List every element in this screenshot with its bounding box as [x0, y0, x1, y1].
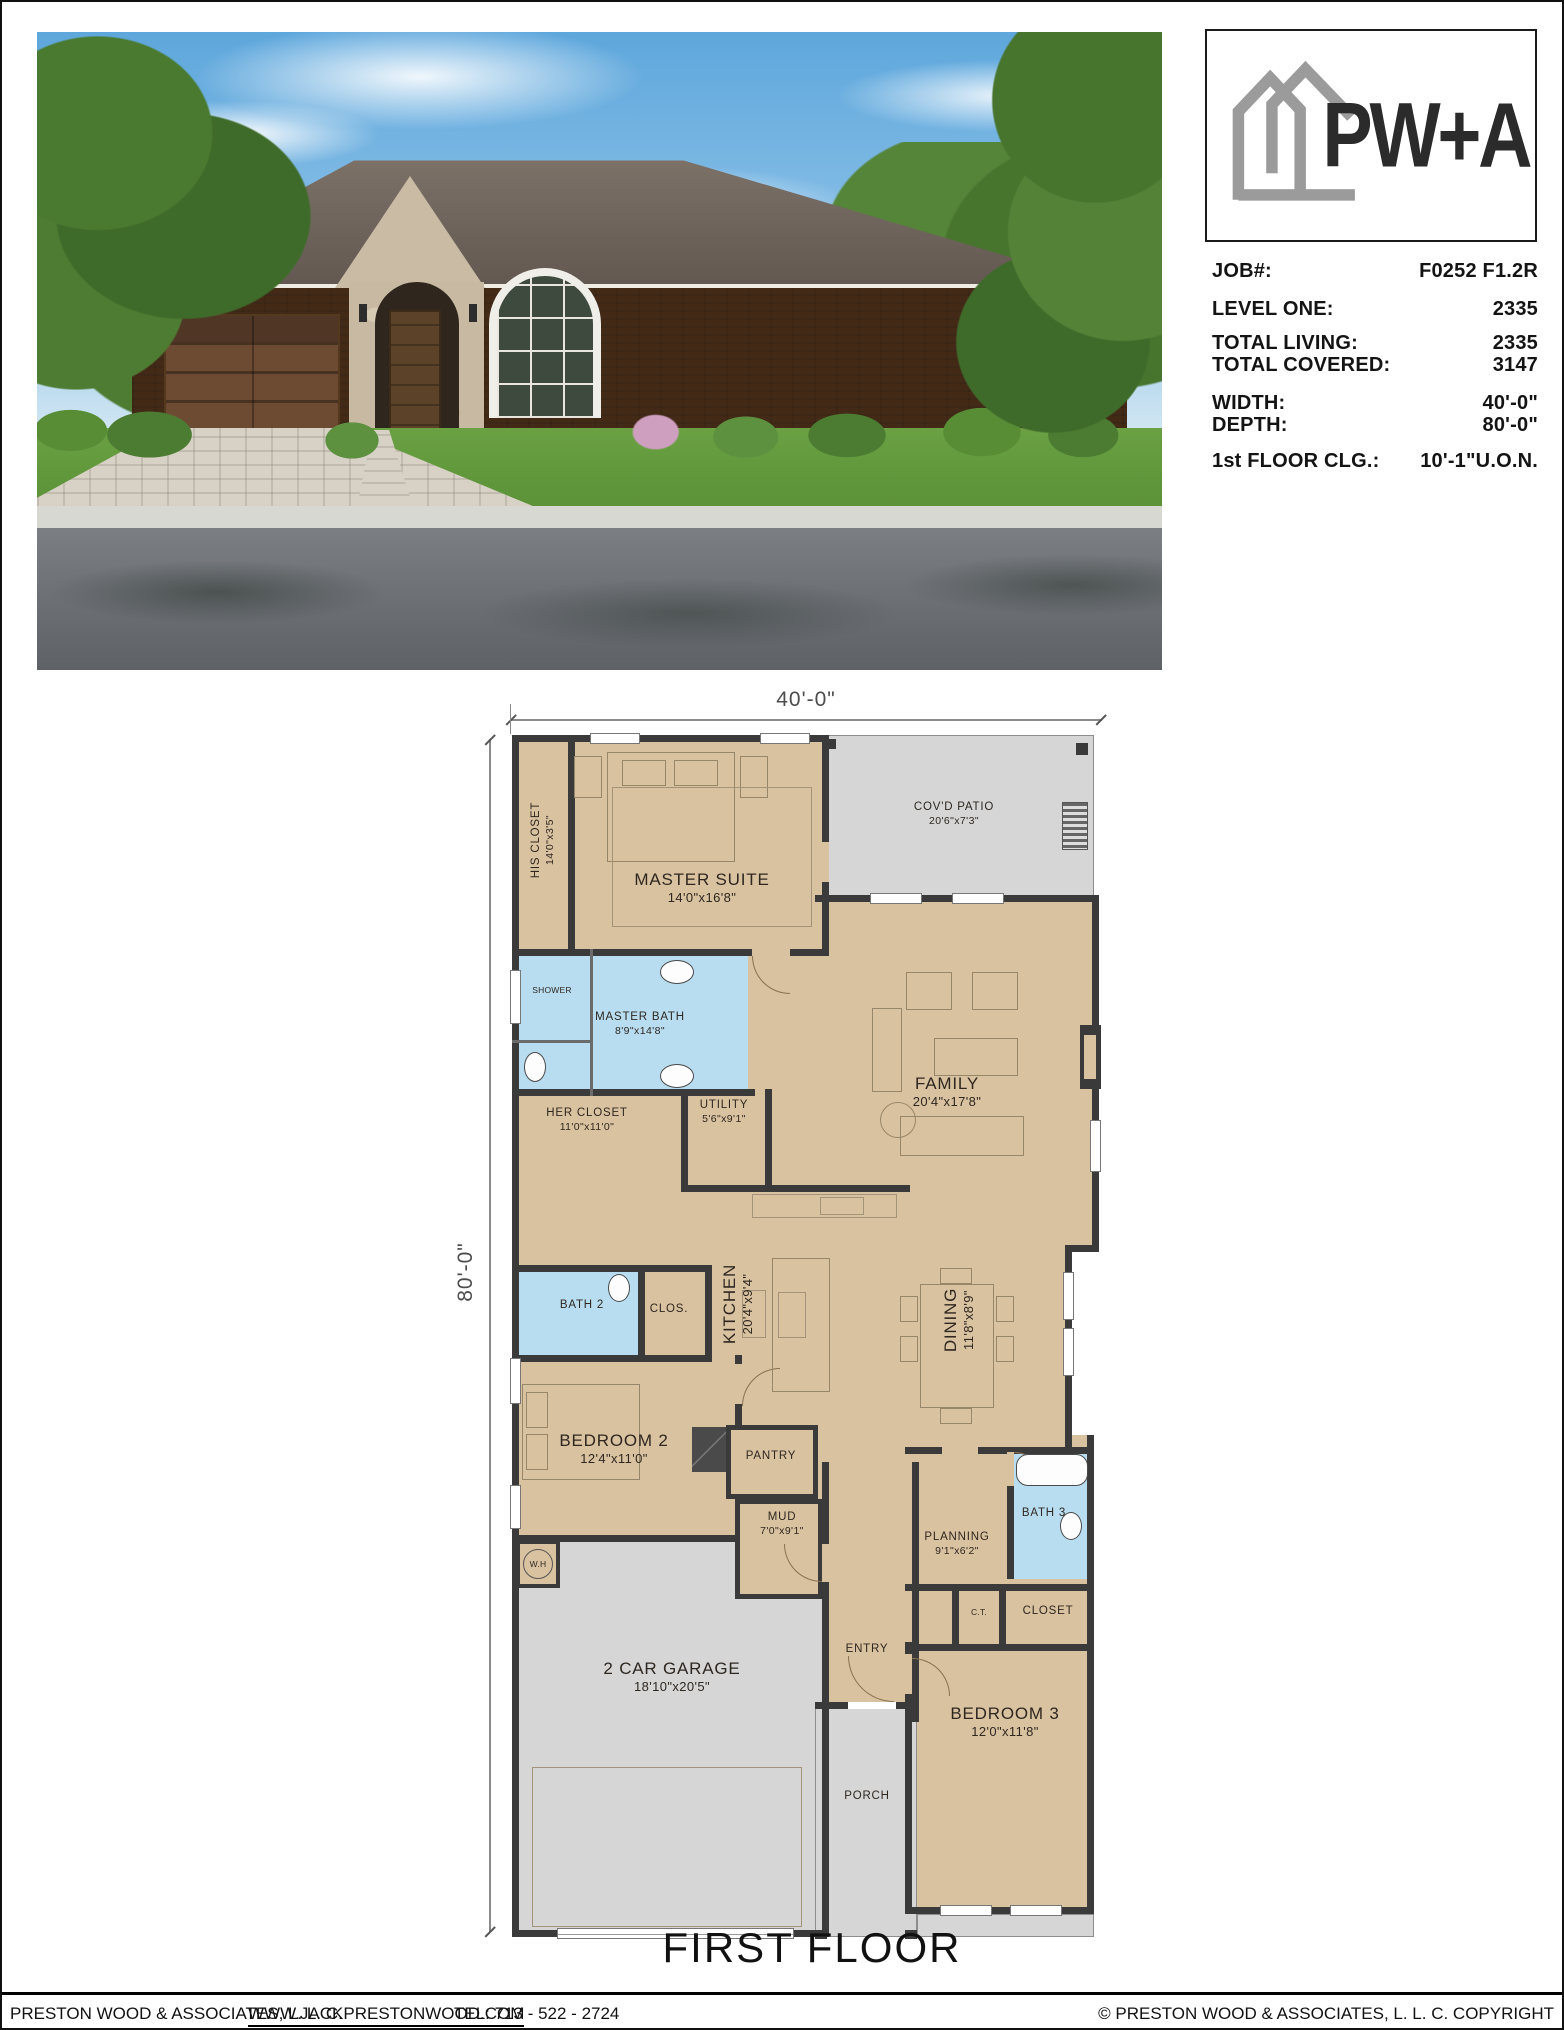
total-covered-value: 3147 [1493, 354, 1538, 377]
wc-partition [512, 1040, 592, 1043]
room-label-kitchen: KITCHEN20'4"x9'4" [720, 1264, 756, 1344]
patio-door [870, 893, 922, 904]
width-label: WIDTH: [1212, 392, 1285, 415]
garage-slab-line [532, 1767, 802, 1927]
street [37, 528, 1162, 670]
job-label: JOB#: [1212, 260, 1272, 283]
clg-label: 1st FLOOR CLG.: [1212, 450, 1379, 473]
wall [905, 1447, 1094, 1454]
sidewalk-curb [37, 506, 1162, 530]
nightstand [574, 756, 602, 798]
window [760, 733, 810, 744]
room-label-ct: C.T. [971, 1607, 987, 1617]
room-label-closet: CLOSET [1023, 1605, 1074, 1619]
room-label-bedroom-3: BEDROOM 312'0"x11'8" [950, 1704, 1059, 1740]
wall [705, 1265, 712, 1362]
room-label-entry: ENTRY [846, 1643, 889, 1657]
dining-chair [900, 1296, 918, 1322]
room-label-dining: DINING11'8"x8'9" [941, 1288, 977, 1352]
clg-value: 10'-1"U.O.N. [1420, 450, 1538, 473]
door-gap [822, 842, 829, 882]
rug [612, 787, 812, 927]
pwa-logo-text: PW+A [1322, 83, 1529, 188]
plan-sheet: PW+A JOB#: F0252 F1.2R LEVEL ONE: 2335 T… [0, 0, 1564, 2030]
wall [999, 1584, 1006, 1651]
room-label-covd-patio: COV'D PATIO20'6"x7'3" [914, 801, 994, 827]
total-living-label: TOTAL LIVING: [1212, 332, 1358, 355]
sofa [900, 1116, 1024, 1156]
total-covered-label: TOTAL COVERED: [1212, 354, 1390, 377]
wall [512, 1355, 712, 1362]
width-dimension-text: 40'-0" [776, 688, 836, 712]
depth-label: DEPTH: [1212, 414, 1288, 437]
room-label-bath-2: BATH 2 [560, 1299, 604, 1313]
shower-partition [590, 949, 593, 1096]
width-row: WIDTH: 40'-0" [1212, 392, 1542, 416]
wall [1065, 1245, 1099, 1252]
total-living-row: TOTAL LIVING: 2335 [1212, 332, 1542, 356]
kitchen-sink [820, 1197, 864, 1215]
room-label-bath-3: BATH 3 [1022, 1507, 1066, 1521]
door-gap [905, 1654, 912, 1694]
patio-louver [1062, 802, 1088, 850]
width-dimension-line [510, 719, 1102, 721]
wall [638, 1265, 645, 1362]
dining-chair [940, 1408, 972, 1424]
chase [692, 1427, 726, 1472]
window [510, 1358, 521, 1404]
level-one-row: LEVEL ONE: 2335 [1212, 298, 1542, 322]
wall [681, 1185, 772, 1192]
door-gap [752, 949, 790, 956]
depth-row: DEPTH: 80'-0" [1212, 414, 1542, 438]
door-gap [942, 1447, 978, 1454]
wall [512, 735, 519, 1937]
pillow [526, 1434, 548, 1470]
patio-door [952, 893, 1004, 904]
total-covered-row: TOTAL COVERED: 3147 [1212, 354, 1542, 378]
clg-row: 1st FLOOR CLG.: 10'-1"U.O.N. [1212, 450, 1542, 474]
footer-telephone: TEL: 713 - 522 - 2724 [454, 2004, 619, 2024]
room-label-her-closet: HER CLOSET11'0"x11'0" [546, 1107, 628, 1133]
total-living-value: 2335 [1493, 332, 1538, 355]
window [510, 1485, 521, 1529]
depth-value: 80'-0" [1483, 414, 1538, 437]
coffee-table [934, 1038, 1018, 1076]
wall [952, 1584, 959, 1651]
wall [822, 1462, 829, 1542]
wall [748, 1185, 910, 1192]
toilet [608, 1274, 630, 1302]
dining-chair [996, 1296, 1014, 1322]
room-label-shower: SHOWER [532, 985, 571, 995]
depth-dimension-line [489, 739, 491, 1932]
bath-sink [660, 960, 694, 984]
front-door-opening [848, 1702, 896, 1709]
footer-bar: PRESTON WOOD & ASSOCIATES, L. L. C. WWW.… [2, 1992, 1562, 2030]
room-label-family: FAMILY20'4"x17'8" [913, 1074, 981, 1110]
patio-post [1076, 743, 1088, 755]
wall-lantern [469, 304, 477, 322]
room-label-pantry: PANTRY [746, 1450, 796, 1464]
room-label-bedroom-2: BEDROOM 212'4"x11'0" [559, 1431, 668, 1467]
bookcase [872, 1008, 902, 1092]
pwa-logo-box: PW+A [1205, 29, 1537, 242]
dining-chair [900, 1336, 918, 1362]
window [590, 733, 640, 744]
wall [905, 1907, 1094, 1914]
window [940, 1905, 992, 1916]
room-label-master-bath: MASTER BATH8'9"x14'8" [595, 1011, 685, 1037]
room-label-planning: PLANNING9'1"x6'2" [924, 1531, 989, 1557]
fireplace-inner [1084, 1035, 1096, 1079]
wall [822, 1535, 829, 1937]
room-label-utility: UTILITY5'6"x9'1" [700, 1099, 748, 1125]
dining-chair [996, 1336, 1014, 1362]
wall [1087, 1435, 1094, 1914]
window [1090, 1120, 1101, 1172]
dining-chair [940, 1268, 972, 1284]
pillow [526, 1392, 548, 1428]
island-sink [778, 1292, 806, 1338]
window [510, 970, 521, 1024]
room-label-master-suite: MASTER SUITE14'0"x16'8" [634, 870, 769, 906]
room-label-garage: 2 CAR GARAGE18'10"x20'5" [603, 1659, 740, 1695]
armchair [906, 972, 952, 1010]
door-gap [1007, 1452, 1014, 1486]
job-row: JOB#: F0252 F1.2R [1212, 260, 1542, 284]
toilet [524, 1052, 546, 1082]
side-table [880, 1102, 916, 1138]
window [1063, 1328, 1074, 1376]
left-tree [37, 32, 377, 492]
pillow [674, 760, 718, 786]
bath-sink [660, 1064, 694, 1088]
width-value: 40'-0" [1483, 392, 1538, 415]
pillow [622, 760, 666, 786]
room-porch [815, 1702, 917, 1937]
plan-title: FIRST FLOOR [562, 1924, 1062, 1972]
room-label-clos: CLOS. [650, 1303, 689, 1317]
wall [512, 1089, 755, 1096]
window [1010, 1905, 1062, 1916]
room-label-mud: MUD7'0"x9'1" [760, 1511, 804, 1537]
door-gap [735, 1364, 742, 1404]
floor-plan: 40'-0" 80'-0" [422, 692, 1202, 1962]
house-rendering-photo [37, 32, 1162, 670]
room-label-his-closet: HIS CLOSET14'0"x3'5" [530, 802, 556, 878]
room-label-water-heater: W.H [530, 1559, 547, 1569]
wall [512, 1265, 709, 1272]
level-one-label: LEVEL ONE: [1212, 298, 1334, 321]
wall [681, 1089, 688, 1192]
depth-dimension-text: 80'-0" [454, 1242, 478, 1302]
wall [765, 1089, 772, 1192]
level-one-value: 2335 [1493, 298, 1538, 321]
bathtub [1016, 1454, 1088, 1486]
window [1063, 1272, 1074, 1320]
job-value: F0252 F1.2R [1419, 260, 1538, 283]
footer-copyright: © PRESTON WOOD & ASSOCIATES, L. L. C. CO… [1098, 2004, 1554, 2024]
armchair [972, 972, 1018, 1010]
right-tree [927, 32, 1162, 452]
door-gap [822, 1544, 829, 1582]
room-label-porch: PORCH [844, 1790, 890, 1804]
dim-ext [510, 704, 511, 734]
